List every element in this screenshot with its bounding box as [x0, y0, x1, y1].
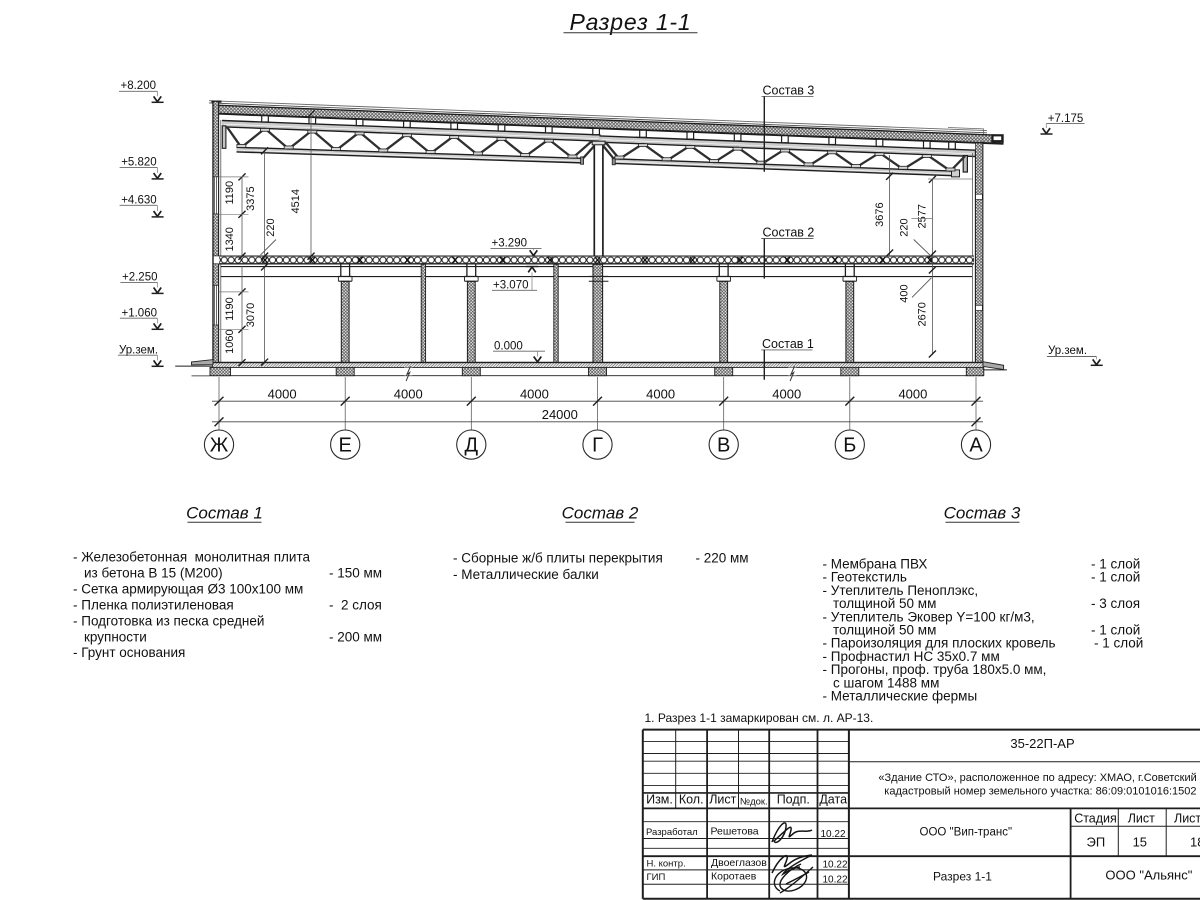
svg-text:2577: 2577: [916, 204, 928, 228]
svg-text:- Грунт основания: - Грунт основания: [73, 645, 185, 660]
svg-text:А: А: [969, 435, 983, 457]
svg-text:- Металлические балки: - Металлические балки: [453, 567, 599, 582]
svg-text:4514: 4514: [290, 189, 302, 213]
svg-text:Стадия: Стадия: [1074, 811, 1117, 825]
svg-text:Решетова: Решетова: [711, 825, 759, 837]
svg-text:- Сборные ж/б плиты перекрытия: - Сборные ж/б плиты перекрытия: [453, 551, 663, 566]
svg-text:4000: 4000: [520, 387, 549, 402]
svg-text:15: 15: [1133, 834, 1147, 849]
svg-text:Н. контр.: Н. контр.: [647, 858, 686, 869]
svg-text:ООО "Вип-транс": ООО "Вип-транс": [920, 826, 1013, 838]
svg-text:Двоеглазов: Двоеглазов: [711, 857, 767, 869]
svg-text:10.22: 10.22: [823, 874, 848, 885]
svg-text:из бетона В 15 (М200): из бетона В 15 (М200): [84, 565, 223, 580]
svg-text:- 1 слой: - 1 слой: [1094, 636, 1143, 651]
svg-text:Ж: Ж: [210, 435, 229, 457]
svg-text:18: 18: [1190, 834, 1200, 849]
svg-text:35-22П-АР: 35-22П-АР: [1010, 736, 1074, 751]
svg-text:Разрез 1-1: Разрез 1-1: [933, 870, 992, 884]
svg-text:1190: 1190: [224, 181, 236, 205]
svg-text:Состав 1: Состав 1: [762, 337, 814, 351]
svg-text:1340: 1340: [224, 227, 236, 251]
svg-text:- Пленка полиэтиленовая: - Пленка полиэтиленовая: [73, 597, 234, 612]
svg-text:1190: 1190: [224, 297, 236, 321]
svg-text:+5.820: +5.820: [121, 157, 157, 169]
svg-text:4000: 4000: [268, 387, 297, 402]
svg-text:Ур.зем.: Ур.зем.: [1048, 345, 1087, 357]
svg-text:4000: 4000: [898, 387, 927, 402]
svg-text:Г: Г: [592, 435, 603, 457]
svg-text:Дата: Дата: [819, 793, 847, 807]
svg-text:- 1 слой: - 1 слой: [1091, 570, 1140, 585]
svg-text:3070: 3070: [245, 303, 257, 327]
svg-text:- 3 слоя: - 3 слоя: [1091, 596, 1140, 611]
svg-text:0.000: 0.000: [494, 340, 523, 352]
svg-text:№док.: №док.: [740, 796, 768, 807]
svg-text:220: 220: [265, 218, 277, 236]
svg-text:«Здание СТО», расположенное по: «Здание СТО», расположенное по адресу: Х…: [878, 772, 1196, 784]
svg-text:Состав 1: Состав 1: [186, 504, 263, 523]
svg-text:крупности: крупности: [84, 629, 147, 644]
svg-text:24000: 24000: [542, 407, 578, 422]
svg-text:Е: Е: [339, 435, 352, 457]
svg-text:Состав 3: Состав 3: [944, 504, 1021, 523]
svg-text:Ур.зем.: Ур.зем.: [119, 344, 158, 356]
svg-text:3375: 3375: [245, 186, 257, 210]
svg-text:Б: Б: [843, 435, 856, 457]
svg-text:- 220 мм: - 220 мм: [696, 551, 749, 566]
svg-text:10.22: 10.22: [823, 859, 848, 870]
svg-text:4000: 4000: [394, 387, 423, 402]
svg-text:ООО "Альянс": ООО "Альянс": [1105, 867, 1192, 882]
svg-text:+2.250: +2.250: [122, 271, 158, 283]
svg-text:+4.630: +4.630: [121, 194, 157, 206]
svg-text:- 150 мм: - 150 мм: [329, 565, 382, 580]
svg-text:+3.070: +3.070: [493, 280, 529, 292]
svg-text:1. Разрез 1-1 замаркирован см.: 1. Разрез 1-1 замаркирован см. л. АР-13.: [645, 711, 874, 725]
svg-text:Состав 3: Состав 3: [763, 83, 815, 97]
svg-text:- 2 слоя: - 2 слоя: [329, 597, 382, 612]
svg-text:4000: 4000: [772, 387, 801, 402]
svg-text:ГИП: ГИП: [647, 872, 666, 883]
svg-text:Разработал: Разработал: [646, 827, 698, 838]
svg-text:Состав 2: Состав 2: [562, 504, 639, 523]
svg-text:1060: 1060: [224, 329, 236, 353]
svg-text:+7.175: +7.175: [1048, 113, 1084, 125]
svg-text:- Подготовка из песка средней: - Подготовка из песка средней: [73, 613, 264, 628]
svg-text:2670: 2670: [916, 302, 928, 326]
svg-text:Листов: Листов: [1174, 811, 1200, 825]
svg-text:- Сетка армирующая Ø3 100х100: - Сетка армирующая Ø3 100х100 мм: [73, 581, 303, 596]
svg-text:+3.290: +3.290: [492, 238, 528, 250]
svg-text:- 200 мм: - 200 мм: [329, 629, 382, 644]
svg-text:кадастровый номер земельного у: кадастровый номер земельного участка: 86…: [884, 786, 1196, 798]
svg-text:400: 400: [899, 284, 911, 302]
svg-text:Лист: Лист: [709, 793, 736, 807]
svg-text:+8.200: +8.200: [121, 80, 157, 92]
svg-text:ЭП: ЭП: [1087, 834, 1106, 849]
svg-text:220: 220: [899, 218, 911, 236]
svg-text:Д: Д: [465, 435, 479, 457]
svg-text:Лист: Лист: [1128, 811, 1155, 825]
svg-text:Разрез 1-1: Разрез 1-1: [570, 9, 692, 35]
svg-text:- Металлические фермы: - Металлические фермы: [823, 689, 978, 704]
svg-text:Коротаев: Коротаев: [711, 870, 757, 882]
svg-text:3676: 3676: [874, 202, 886, 226]
svg-text:Состав 2: Состав 2: [763, 226, 815, 240]
svg-text:Кол.: Кол.: [679, 793, 704, 807]
svg-text:В: В: [717, 435, 730, 457]
svg-text:Подп.: Подп.: [777, 793, 810, 807]
svg-text:Изм.: Изм.: [646, 793, 673, 807]
svg-text:- Железобетонная монолитная п: - Железобетонная монолитная плита: [73, 550, 310, 565]
svg-text:4000: 4000: [646, 387, 675, 402]
svg-text:10.22: 10.22: [821, 829, 846, 840]
